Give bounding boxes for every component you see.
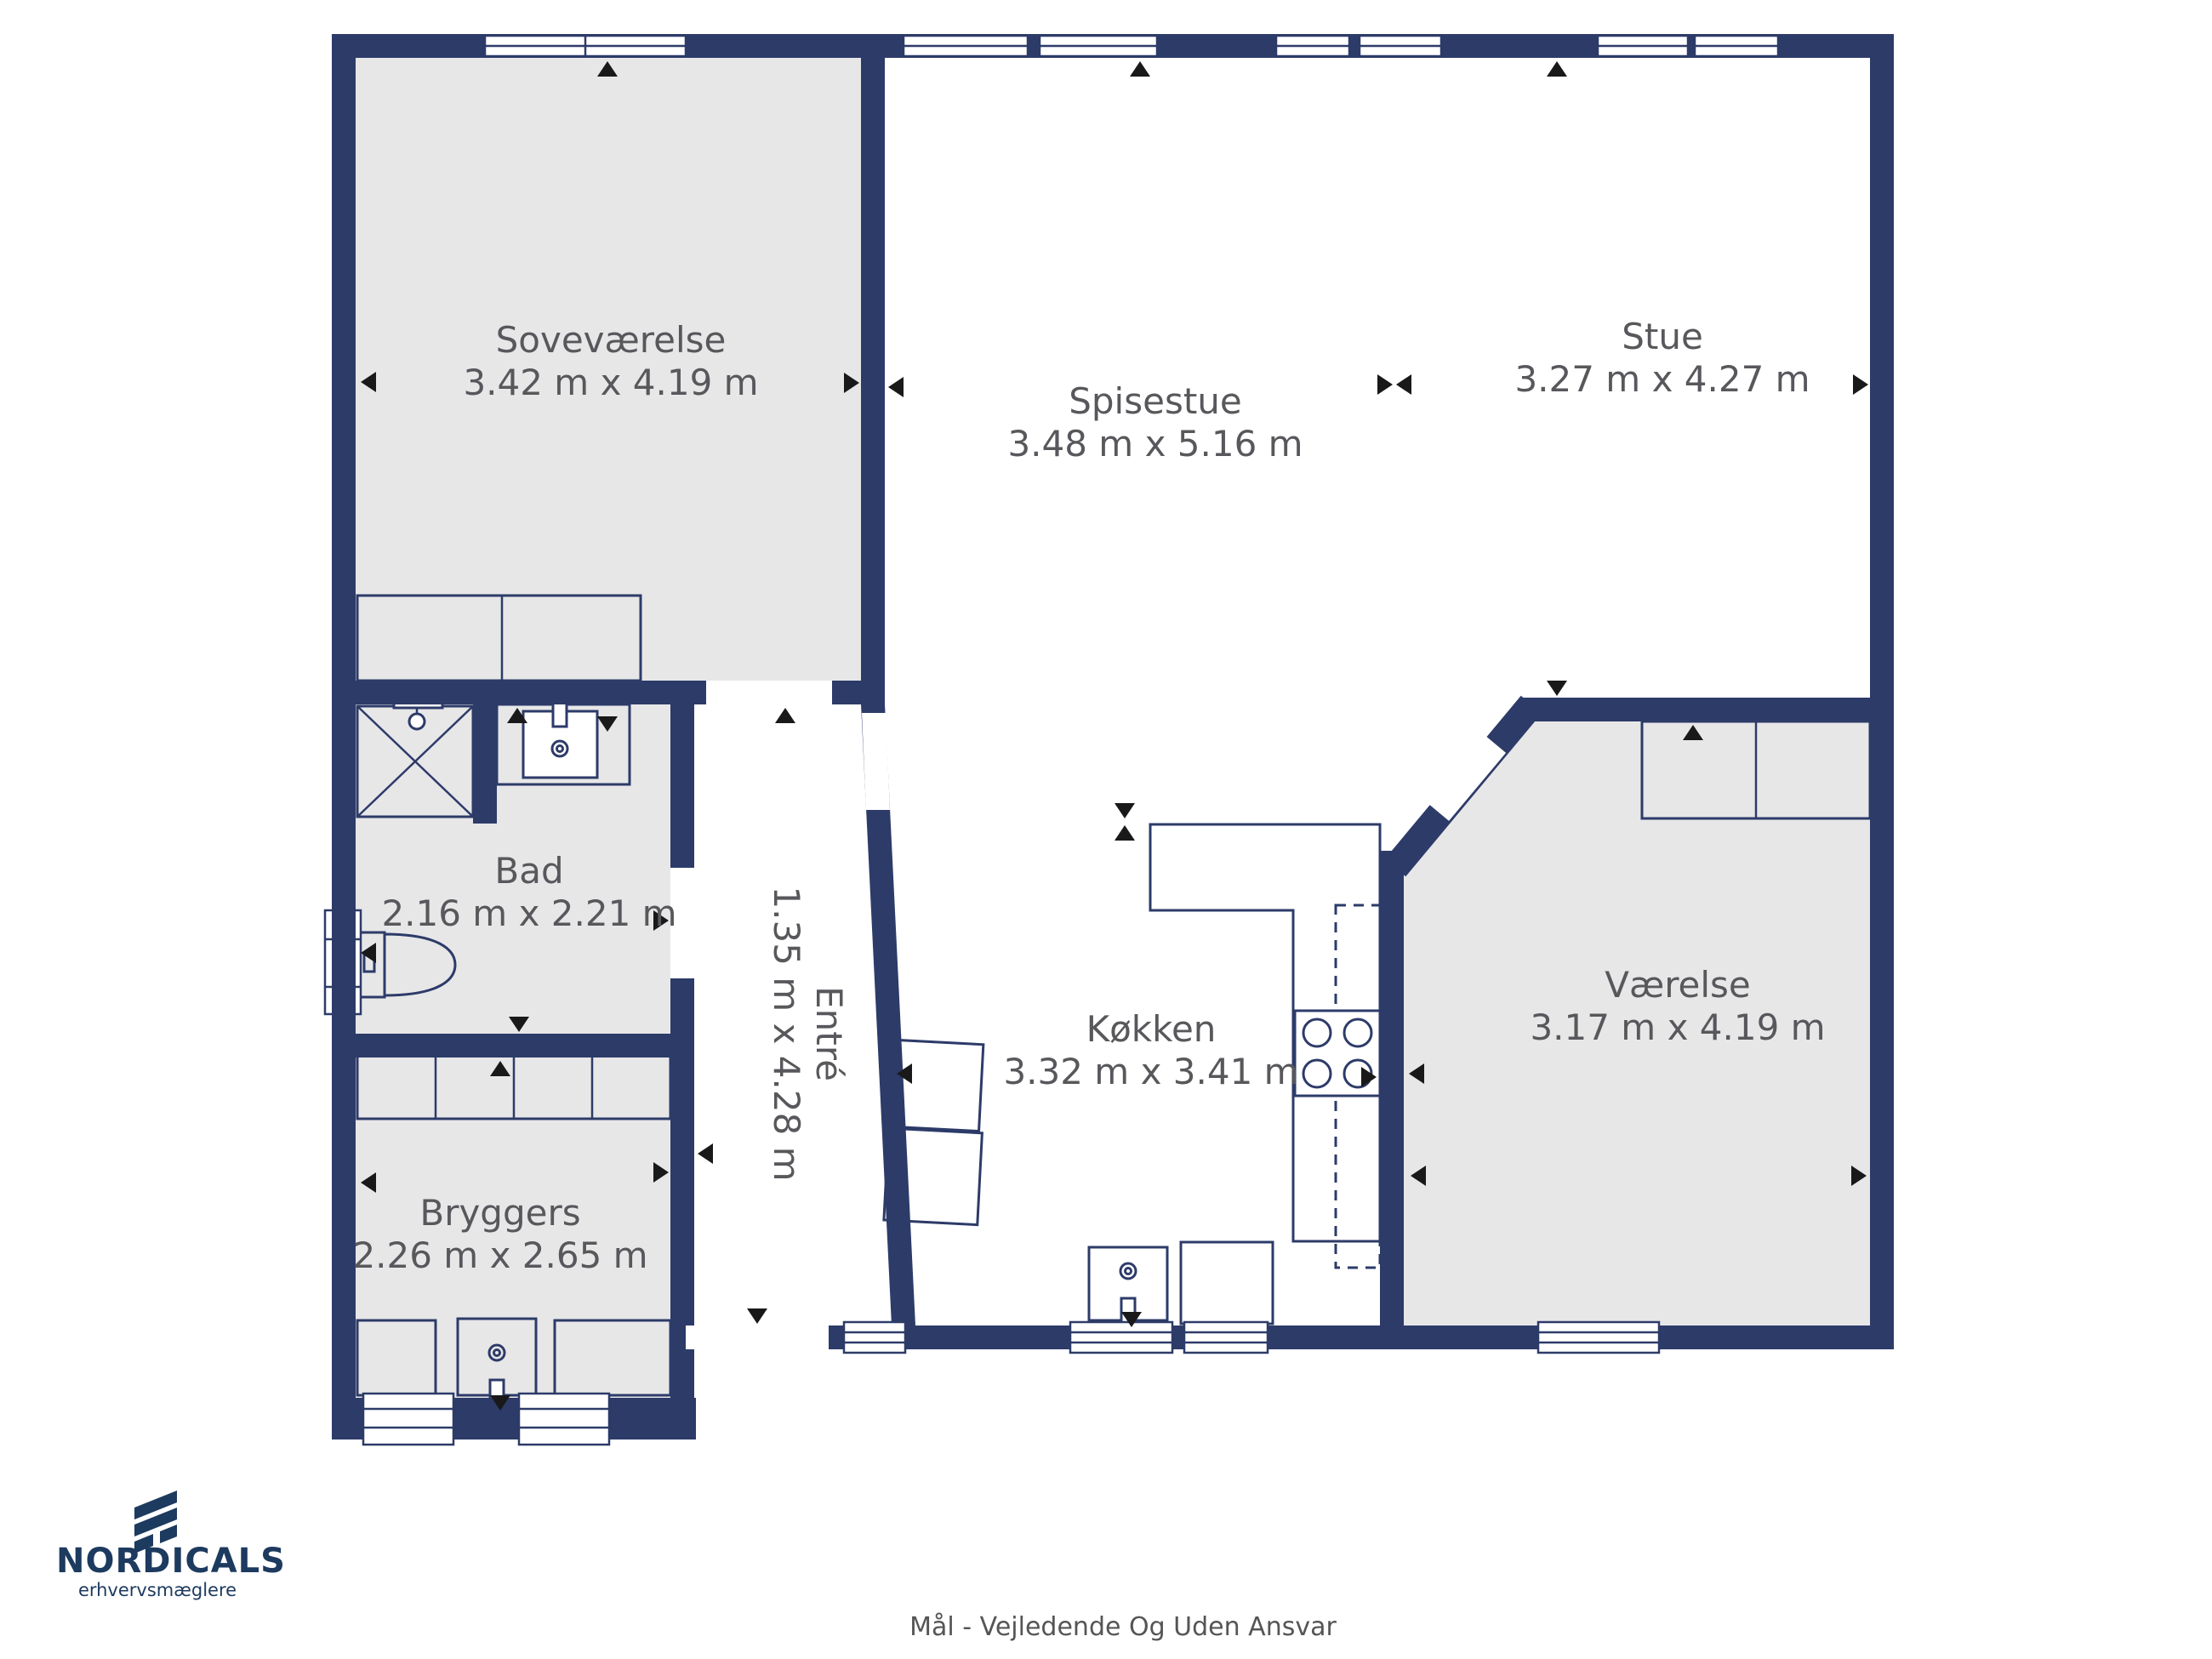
room-dims: 3.27 m x 4.27 m [1514,358,1810,400]
shower-head-icon [409,714,425,729]
window [363,1394,453,1445]
door-entrance [686,1325,829,1349]
wall-bad-stub [473,704,497,824]
window [1538,1322,1659,1353]
window [519,1394,609,1445]
room-name: Spisestue [1069,380,1242,422]
room-label-sovevaerelse: Soveværelse 3.42 m x 4.19 m [463,319,758,403]
shower [357,696,473,817]
room-name: Værelse [1605,964,1751,1006]
room-dims: 1.35 m x 4.28 m [766,886,807,1181]
room-dims: 2.16 m x 2.21 m [381,892,676,934]
room-name: Entré [808,986,850,1081]
vaerelse-closet [1642,721,1870,818]
wall-left [332,34,356,1440]
window [1695,36,1778,56]
room-name: Køkken [1086,1008,1217,1050]
room-dims: 3.42 m x 4.19 m [463,362,758,403]
window [1040,36,1157,56]
room-name: Bryggers [419,1192,580,1234]
wardrobe [357,596,641,681]
kitchen-cabinet [1181,1242,1273,1324]
window [844,1322,905,1353]
faucet-icon [553,703,567,727]
disclaimer-text: Mål - Vejledende Og Uden Ansvar [909,1612,1337,1642]
room-dims: 3.32 m x 3.41 m [1003,1051,1298,1092]
door-sovevaerelse [706,681,832,704]
wall-right [1870,34,1894,1349]
room-dims: 3.48 m x 5.16 m [1007,423,1303,465]
room-dims: 3.17 m x 4.19 m [1530,1006,1825,1048]
window [904,36,1028,56]
door-spisestue [862,713,890,810]
window [1184,1322,1268,1353]
wall-sovevaerelse-east [861,34,885,704]
logo-wordmark: NORDICALS [56,1542,286,1581]
wall-vaerelse-north [1519,698,1870,721]
room-name: Bad [494,850,563,892]
bryggers-sink [357,1319,670,1405]
window [1598,36,1688,56]
window [1276,36,1349,56]
wall-vaerelse-west [1380,851,1404,1325]
room-name: Stue [1622,316,1703,357]
window [1070,1322,1172,1353]
floorplan-drawing: Soveværelse 3.42 m x 4.19 m Spisestue 3.… [0,0,2212,1659]
wall-bad-south [332,1034,694,1058]
room-dims: 2.26 m x 2.65 m [352,1234,647,1276]
logo-tagline: erhvervsmæglere [78,1580,237,1600]
room-name: Soveværelse [496,319,727,361]
window [1360,36,1441,56]
window [485,36,686,56]
nordicals-logo: NORDICALS erhvervsmæglere [56,1491,286,1600]
floorplan-page: Soveværelse 3.42 m x 4.19 m Spisestue 3.… [0,0,2212,1659]
